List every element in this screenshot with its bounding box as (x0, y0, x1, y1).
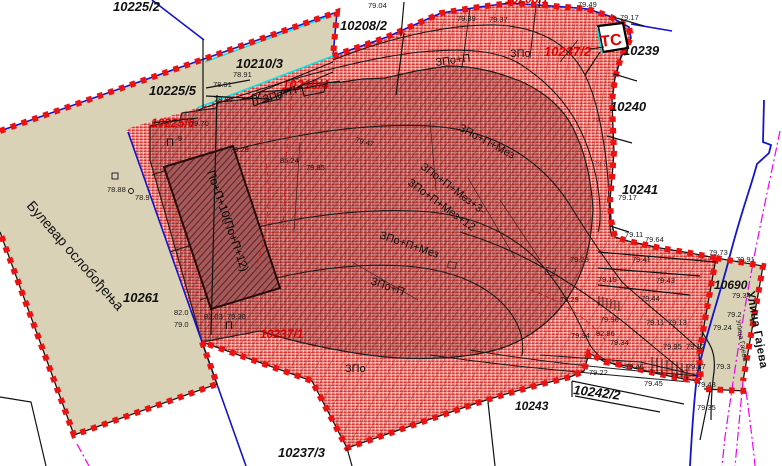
svg-text:79.49: 79.49 (578, 0, 597, 9)
svg-text:79.85: 79.85 (306, 163, 325, 172)
svg-text:ЗПо: ЗПо (345, 363, 366, 375)
svg-text:10239: 10239 (623, 43, 660, 58)
svg-text:79.04: 79.04 (368, 1, 387, 10)
svg-text:79.34: 79.34 (571, 331, 590, 340)
svg-text:10225/2: 10225/2 (113, 0, 161, 14)
svg-text:10210/3: 10210/3 (236, 56, 284, 71)
svg-text:79.17: 79.17 (620, 13, 639, 22)
svg-text:79.1: 79.1 (592, 117, 605, 124)
svg-text:10243: 10243 (515, 399, 549, 413)
svg-text:10261: 10261 (123, 290, 159, 305)
svg-text:79.22: 79.22 (589, 368, 608, 377)
svg-text:79.43: 79.43 (656, 276, 675, 285)
svg-text:79.11: 79.11 (646, 318, 664, 327)
svg-text:78.88: 78.88 (107, 185, 126, 194)
svg-text:79.64: 79.64 (645, 235, 664, 244)
svg-text:79.17: 79.17 (618, 193, 637, 202)
svg-text:79.96: 79.96 (600, 315, 619, 324)
svg-text:10208/2: 10208/2 (340, 18, 388, 33)
svg-text:79.2: 79.2 (727, 310, 742, 319)
svg-text:79.19: 79.19 (598, 275, 617, 284)
svg-text:79.23: 79.23 (570, 255, 589, 264)
svg-text:79.34: 79.34 (732, 291, 751, 300)
svg-text:79.91: 79.91 (736, 255, 755, 264)
svg-text:10240: 10240 (610, 99, 647, 114)
svg-text:82.86: 82.86 (596, 329, 615, 338)
svg-text:79.13: 79.13 (668, 318, 687, 327)
svg-text:П: П (225, 320, 233, 332)
svg-text:79.7: 79.7 (594, 161, 607, 168)
svg-text:79.29: 79.29 (560, 295, 579, 304)
svg-text:79.95: 79.95 (663, 342, 682, 351)
svg-text:79.37: 79.37 (489, 15, 508, 24)
svg-text:10225/5: 10225/5 (149, 83, 197, 98)
svg-text:П: П (166, 137, 174, 149)
svg-text:ТС: ТС (599, 31, 623, 51)
svg-text:79.46: 79.46 (625, 362, 644, 371)
svg-text:9: 9 (178, 136, 182, 143)
svg-text:79.37: 79.37 (687, 362, 706, 371)
svg-text:82.03: 82.03 (204, 312, 223, 321)
svg-text:79.24: 79.24 (713, 323, 732, 332)
svg-text:79.39: 79.39 (457, 14, 476, 23)
svg-text:79.70: 79.70 (190, 119, 209, 128)
svg-text:78.9: 78.9 (135, 193, 150, 202)
svg-text:ЗПо: ЗПо (510, 48, 531, 60)
svg-text:79.3: 79.3 (716, 362, 731, 371)
svg-text:79.34: 79.34 (610, 338, 629, 347)
svg-text:10690: 10690 (714, 278, 748, 292)
svg-text:78.91: 78.91 (233, 70, 252, 79)
svg-text:85.24: 85.24 (280, 156, 299, 165)
svg-text:79.0: 79.0 (174, 320, 189, 329)
svg-text:10225/6: 10225/6 (151, 116, 195, 130)
svg-text:79.38: 79.38 (227, 312, 246, 321)
svg-text:82.0: 82.0 (174, 308, 189, 317)
svg-text:79.44: 79.44 (641, 294, 660, 303)
svg-text:10237/3: 10237/3 (278, 445, 326, 460)
svg-text:10237/2: 10237/2 (544, 44, 592, 59)
svg-text:10237/1: 10237/1 (260, 327, 304, 341)
svg-text:79.73: 79.73 (709, 248, 728, 257)
svg-text:10208/1: 10208/1 (505, 0, 549, 6)
svg-text:79.29: 79.29 (230, 145, 249, 154)
svg-text:79.12: 79.12 (686, 342, 705, 351)
svg-text:79.45: 79.45 (644, 379, 663, 388)
